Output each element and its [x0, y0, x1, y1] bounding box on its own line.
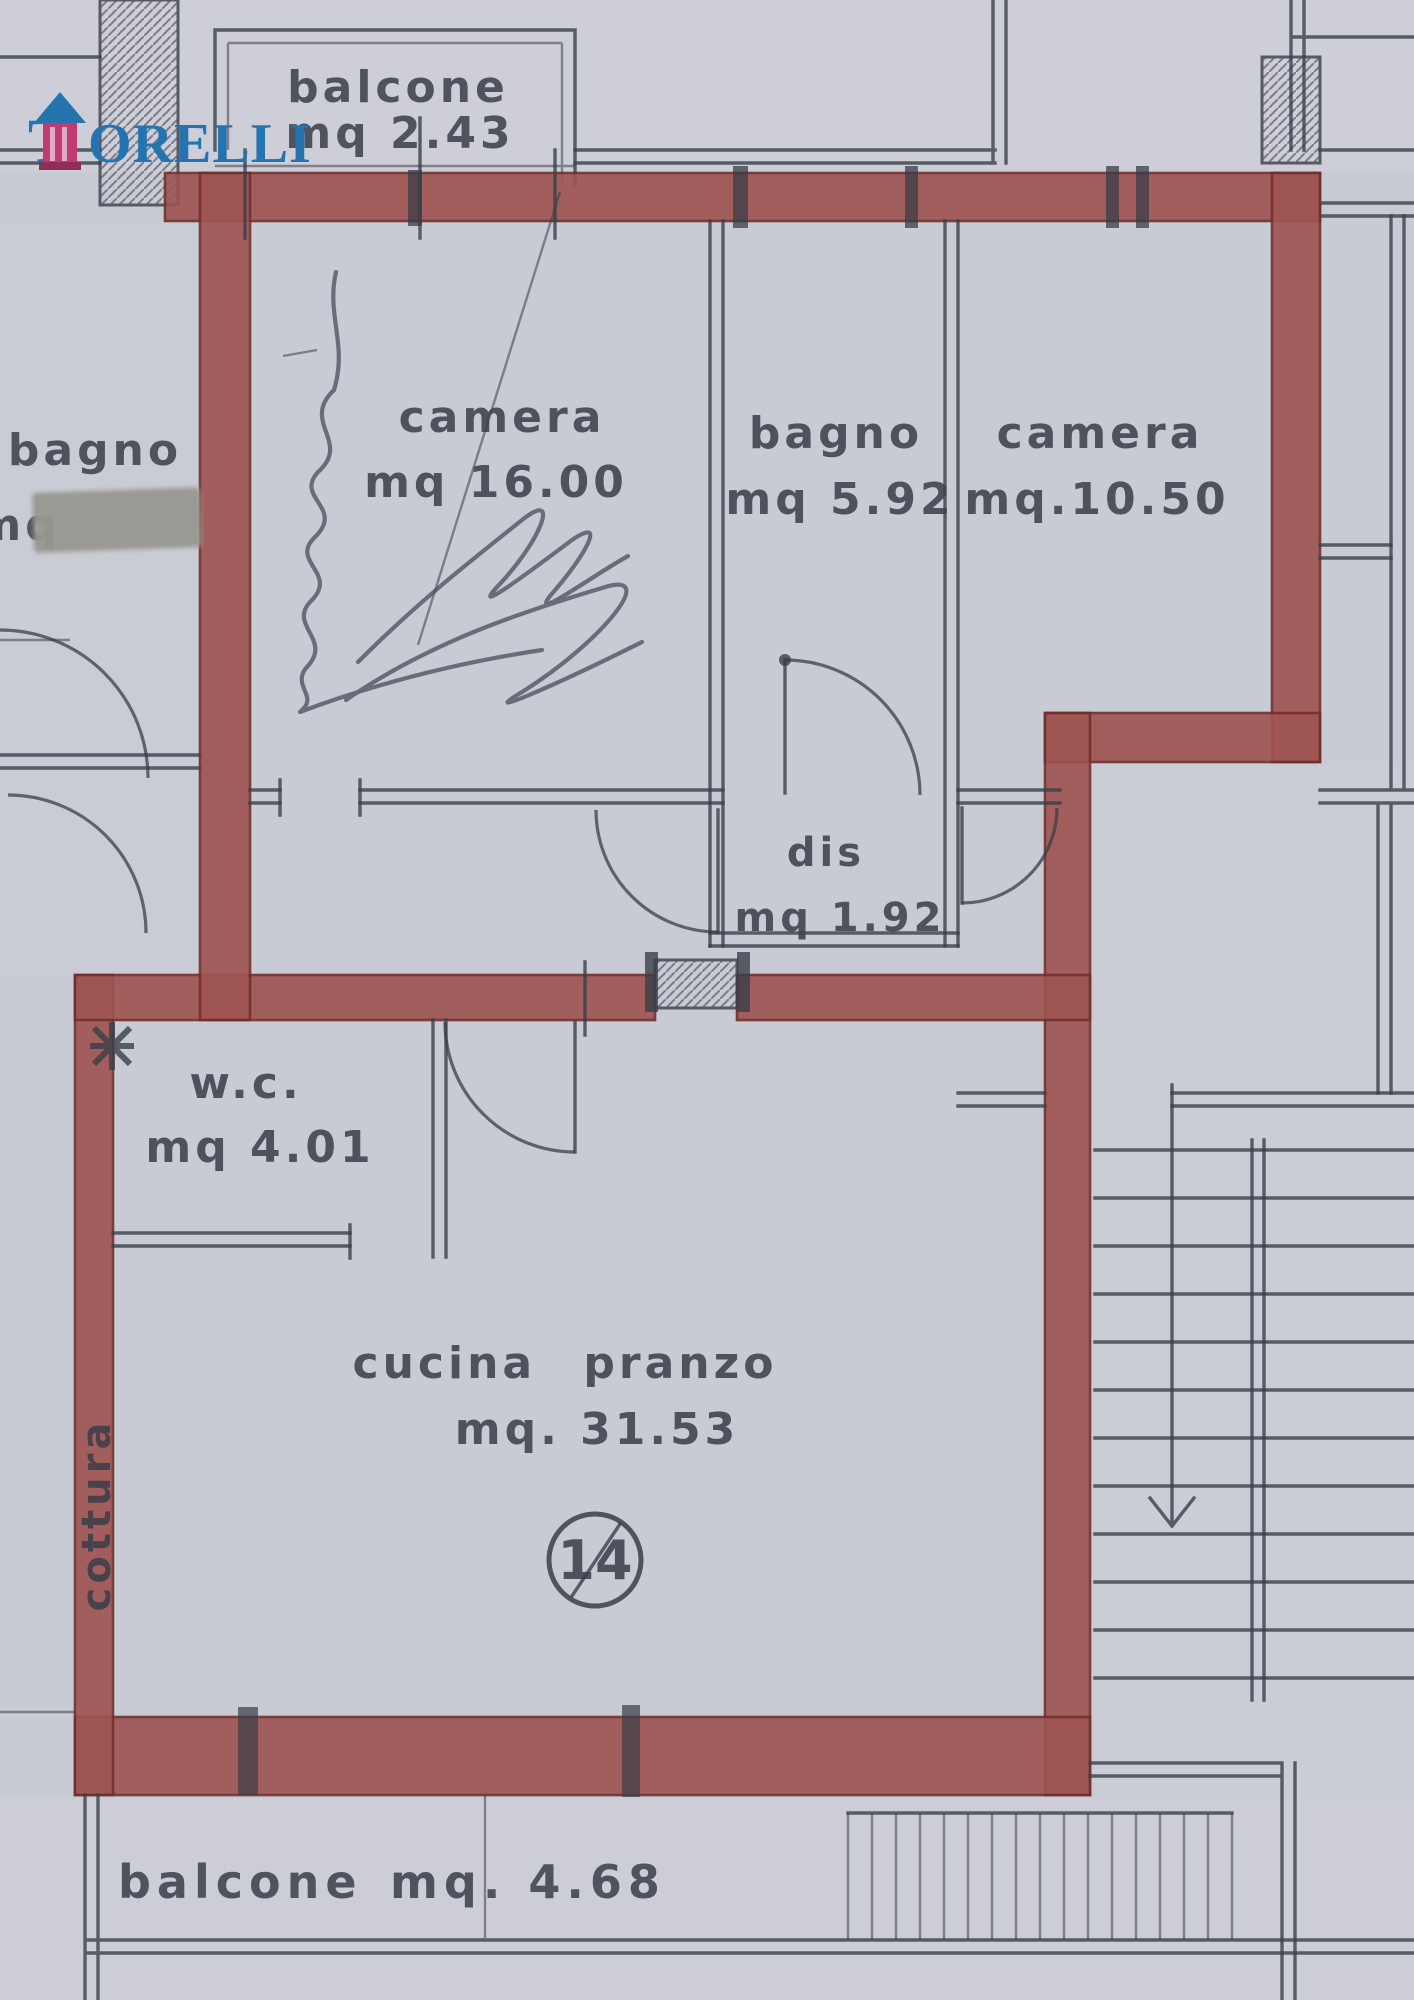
balcone-top-label: balcone	[287, 62, 509, 113]
bagno-door-arc	[785, 660, 920, 795]
cucina-area: mq. 31.53	[455, 1404, 740, 1455]
camera-grande-area: mq 16.00	[364, 457, 628, 508]
cucina-door-arc	[445, 1022, 575, 1152]
camera-grande-label: camera	[399, 392, 606, 443]
floor-plan-scan: balcone mq 2.43 bagno mq camera mq 16.00…	[0, 0, 1414, 2000]
wc-area: mq 4.01	[145, 1122, 374, 1173]
camera-piccola-area: mq.10.50	[964, 474, 1229, 525]
balcone-top-area: mq 2.43	[285, 108, 514, 159]
hall-door-arc	[596, 810, 718, 932]
wc-label: w.c.	[189, 1058, 302, 1109]
cottura-label: cottura	[74, 1419, 120, 1612]
vent-symbol	[90, 1022, 134, 1070]
logo-text: ORELLI	[88, 113, 312, 175]
redaction-blur	[32, 487, 202, 553]
dis-area: mq 1.92	[735, 895, 946, 941]
sliding-door	[655, 960, 737, 1008]
camera-piccola-label: camera	[997, 408, 1204, 459]
cucina-label: cucina pranzo	[353, 1338, 778, 1389]
balcone-bottom-area: mq. 4.68	[390, 1855, 666, 1909]
unit-number-badge: 14	[549, 1514, 641, 1606]
balcone-bottom-label: balcone	[118, 1855, 363, 1909]
bagno-area: mq 5.92	[725, 474, 954, 525]
dis-label: dis	[787, 830, 865, 876]
bagno-label: bagno	[749, 408, 923, 459]
floor-plan-drawing: balcone mq 2.43 bagno mq camera mq 16.00…	[0, 0, 1414, 2000]
bagno-left-label: bagno	[8, 425, 182, 476]
hatched-column-top-right	[1262, 57, 1320, 163]
camera-door-arc	[962, 808, 1057, 903]
